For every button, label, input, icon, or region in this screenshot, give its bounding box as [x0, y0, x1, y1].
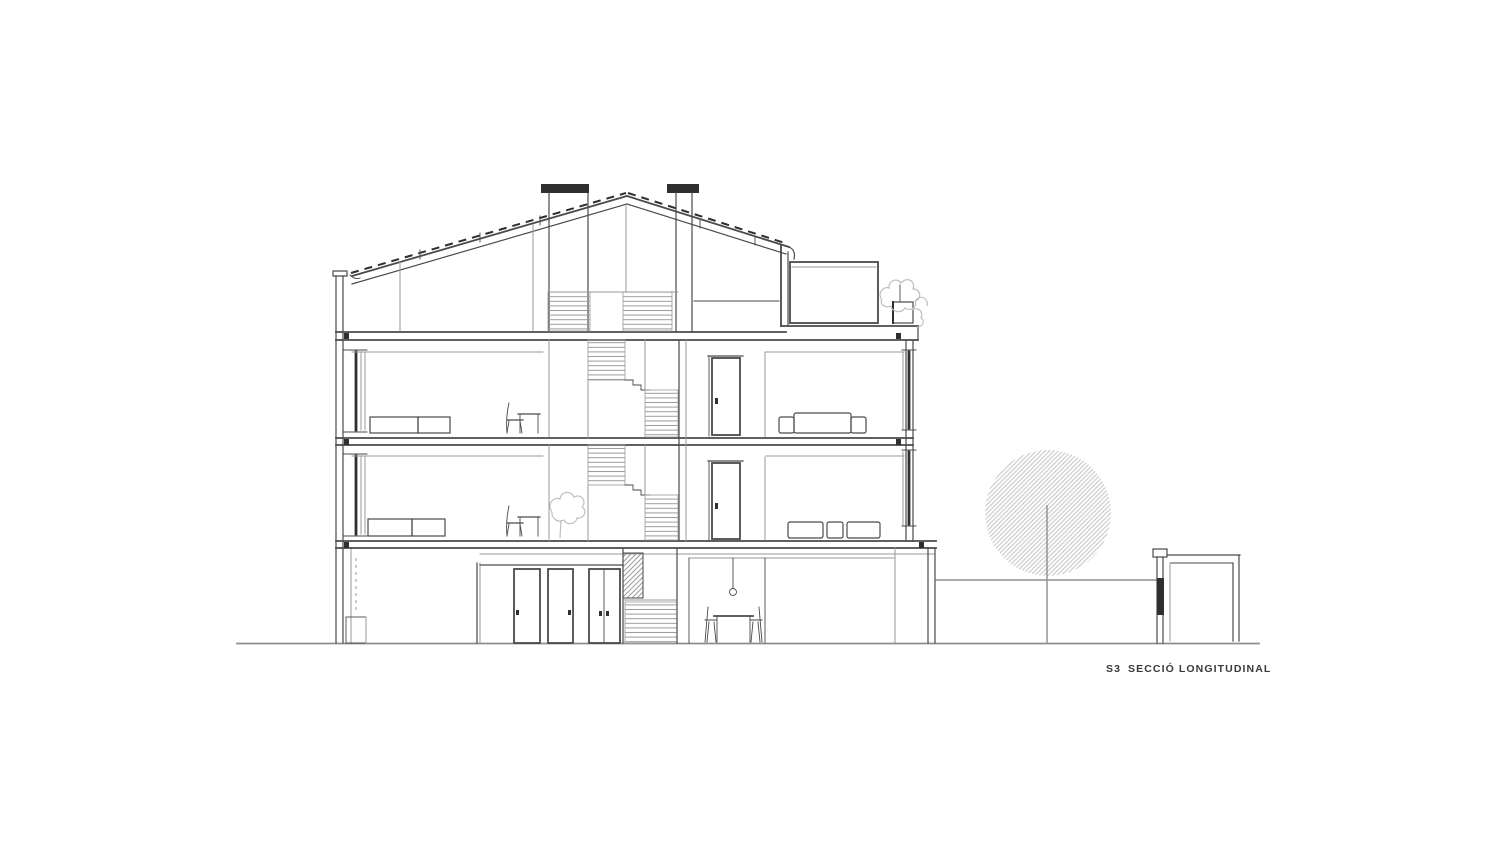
architectural-drawing-page: S3 SECCIÓ LONGITUDINAL [0, 0, 1500, 844]
gable-roof [351, 193, 794, 284]
floor1-door [708, 461, 743, 540]
dining-area [705, 558, 762, 642]
bed [370, 417, 418, 433]
terrace-planter [893, 302, 913, 323]
shed-door-section [1157, 578, 1164, 615]
building-section-drawing: S3 SECCIÓ LONGITUDINAL [0, 0, 1500, 844]
sofa [788, 522, 823, 538]
tree [985, 450, 1111, 643]
floor2-furniture [370, 403, 866, 433]
drawing-label: S3 SECCIÓ LONGITUDINAL [1106, 662, 1271, 675]
indoor-plant [550, 492, 585, 523]
drawing-label-title: SECCIÓ LONGITUDINAL [1128, 662, 1271, 675]
central-staircase [548, 292, 689, 643]
chair-and-desk [507, 403, 540, 433]
tree-canopy [985, 450, 1111, 576]
garden-shed [1153, 549, 1240, 643]
dining-chair-right [750, 607, 762, 642]
floor-slabs [336, 326, 936, 558]
floor1-furniture [368, 492, 880, 538]
terrace-penthouse-box [790, 262, 878, 323]
bed [368, 519, 412, 536]
sofa [779, 417, 794, 433]
interior-partition [549, 340, 895, 643]
right-exterior-wall [902, 340, 935, 643]
dining-chair-left [705, 607, 717, 642]
entry-doors [477, 563, 623, 643]
floor2-door [708, 356, 743, 436]
drawing-label-code: S3 [1106, 663, 1121, 675]
